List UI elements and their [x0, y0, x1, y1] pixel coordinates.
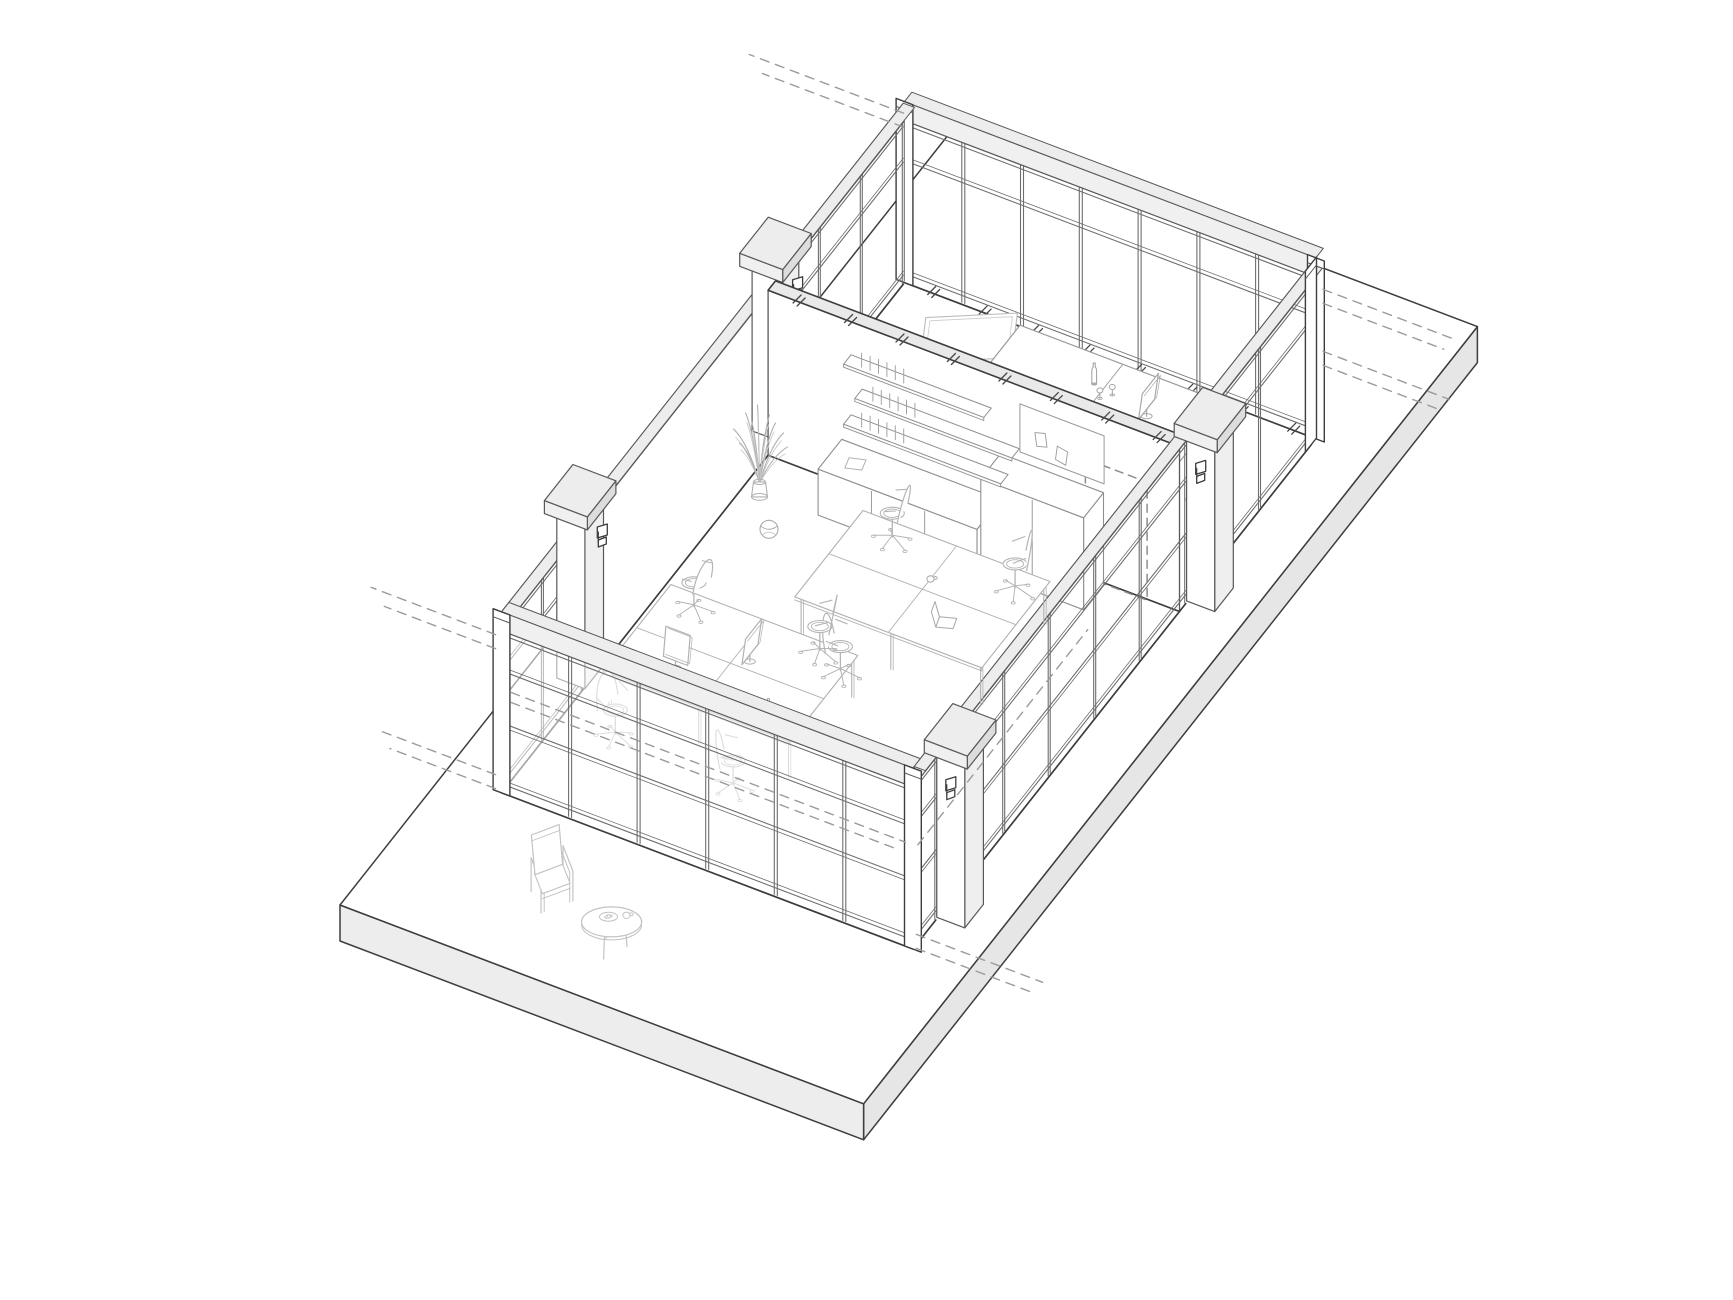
wall-light-fixture: [946, 777, 956, 800]
floor-ball: [760, 520, 778, 538]
axonometric-office-drawing: [0, 0, 1733, 1300]
drawing-canvas: [0, 0, 1733, 1300]
plate-with-croissant: [600, 912, 618, 921]
wall-light-fixture: [597, 524, 607, 547]
wall-light-fixture: [1196, 460, 1206, 483]
